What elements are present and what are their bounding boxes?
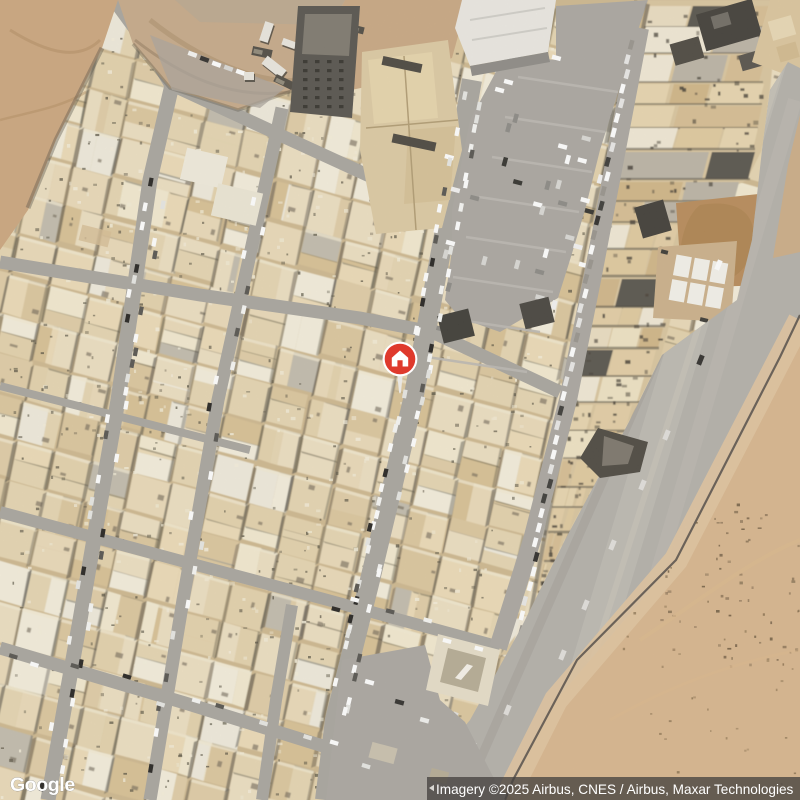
svg-text:Google: Google xyxy=(10,774,75,796)
svg-text:Imagery ©2025 Airbus, CNES / A: Imagery ©2025 Airbus, CNES / Airbus, Max… xyxy=(436,782,794,797)
